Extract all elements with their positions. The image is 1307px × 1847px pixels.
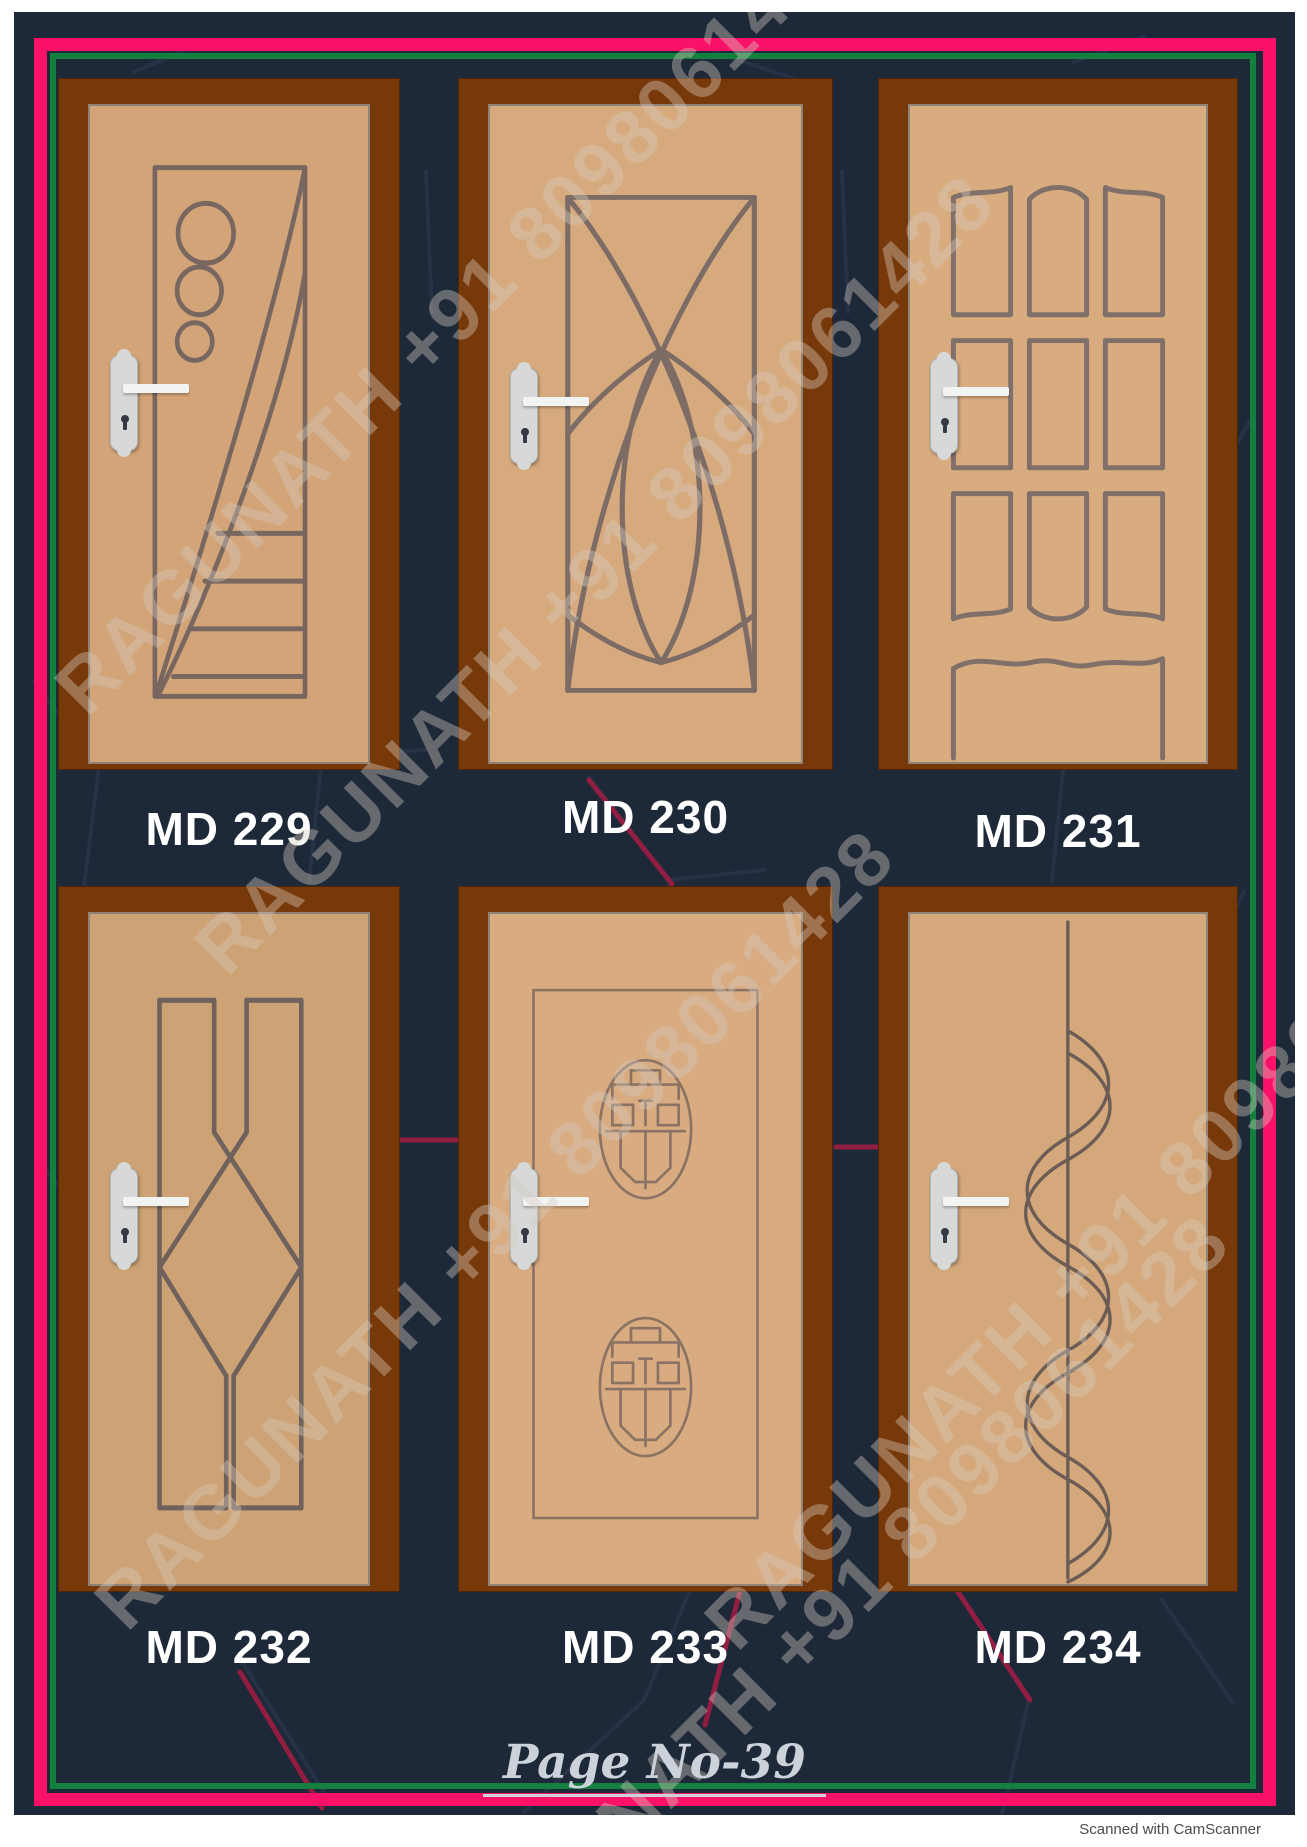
keyhole-icon — [121, 415, 129, 423]
handle-plate — [930, 1168, 958, 1264]
handle-plate — [110, 1168, 138, 1264]
door-handle — [110, 1168, 205, 1264]
page-number: Page No-39 — [14, 1735, 1295, 1790]
page-number-text: Page No-39 — [483, 1735, 826, 1797]
door-md230 — [458, 78, 833, 770]
door-label-md233: MD 233 — [458, 1620, 833, 1674]
door-label-md231: MD 231 — [878, 804, 1238, 858]
keyhole-icon — [521, 1228, 529, 1236]
scanned-catalog-page: { "watermark": { "text": "RAGUNATH +91 8… — [0, 0, 1307, 1847]
keyhole-icon — [941, 1228, 949, 1236]
handle-plate — [510, 1168, 538, 1264]
handle-bar — [523, 397, 589, 406]
door-md231 — [878, 78, 1238, 770]
door-label-md229: MD 229 — [58, 802, 400, 856]
door-handle — [510, 1168, 605, 1264]
door-md229 — [58, 78, 400, 770]
door-label-md230: MD 230 — [458, 790, 833, 844]
door-label-md234: MD 234 — [878, 1620, 1238, 1674]
door-handle — [930, 1168, 1025, 1264]
keyhole-icon — [941, 418, 949, 426]
handle-bar — [523, 1197, 589, 1206]
handle-plate — [510, 368, 538, 464]
door-md232 — [58, 886, 400, 1592]
keyhole-icon — [121, 1228, 129, 1236]
door-handle — [110, 355, 205, 451]
handle-plate — [110, 355, 138, 451]
handle-bar — [123, 1197, 189, 1206]
door-handle — [930, 358, 1025, 454]
catalog-page: RAGUNATH +91 8098061428 RAGUNATH +91 809… — [14, 12, 1295, 1815]
camscanner-note: Scanned with CamScanner — [1079, 1821, 1261, 1838]
handle-bar — [123, 384, 189, 393]
handle-bar — [943, 387, 1009, 396]
handle-plate — [930, 358, 958, 454]
door-label-md232: MD 232 — [58, 1620, 400, 1674]
door-md234 — [878, 886, 1238, 1592]
keyhole-icon — [521, 428, 529, 436]
handle-bar — [943, 1197, 1009, 1206]
door-md233 — [458, 886, 833, 1592]
door-handle — [510, 368, 605, 464]
